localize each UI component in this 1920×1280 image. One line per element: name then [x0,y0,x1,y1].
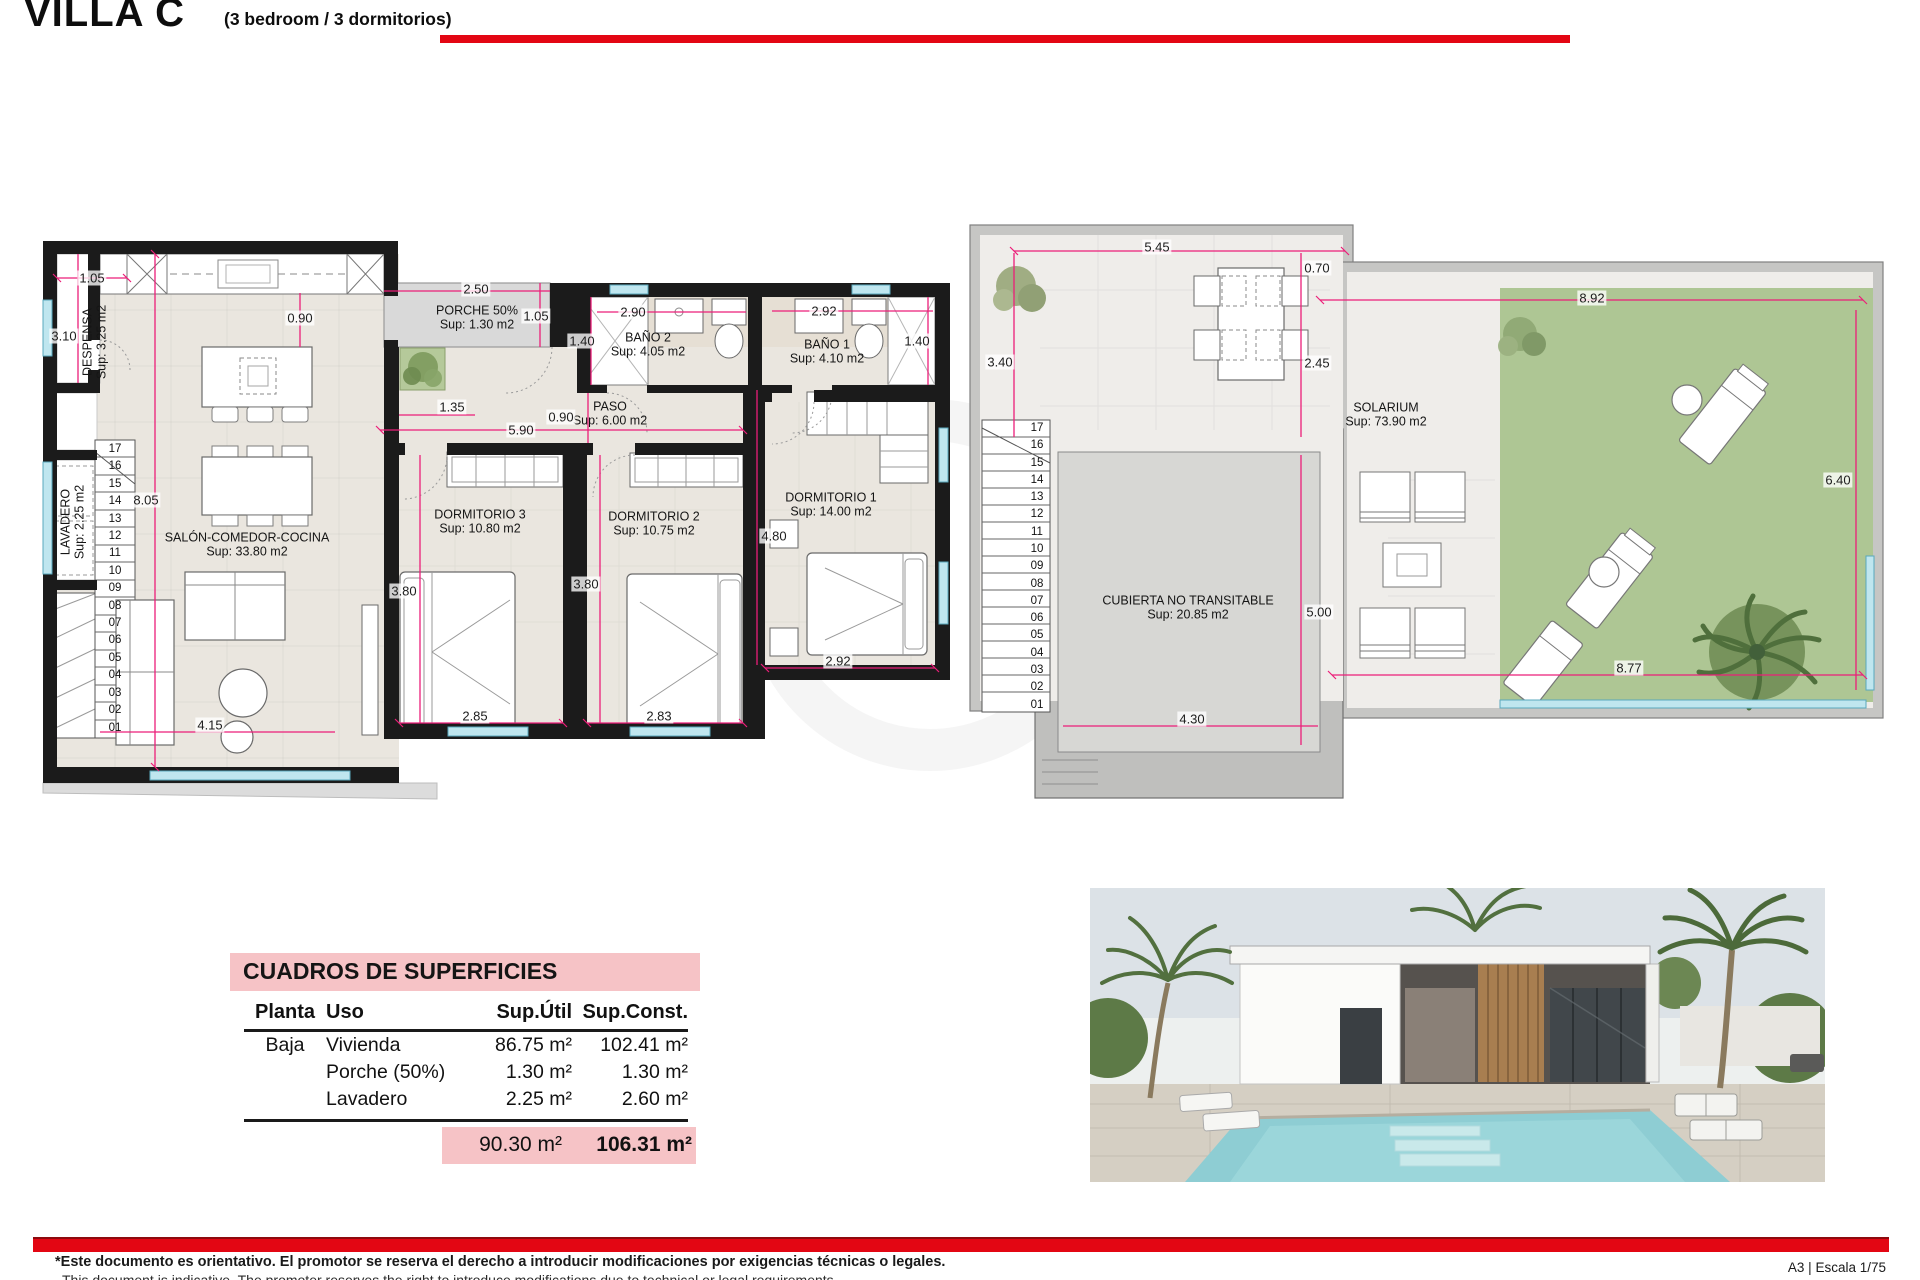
cell-uso: Porche (50%) [326,1059,472,1086]
room-label-cubierta: CUBIERTA NO TRANSITABLESup: 20.85 m2 [1102,594,1273,623]
table-row: Lavadero 2.25 m² 2.60 m² [244,1086,688,1113]
stair-step-number: 07 [1017,596,1057,608]
room-label-dormitorio3: DORMITORIO 3Sup: 10.80 m2 [434,508,525,537]
stair-step-number: 10 [1017,544,1057,556]
page-subtitle: (3 bedroom / 3 dormitorios) [224,9,452,30]
total-sup-const: 106.31 m² [562,1133,692,1157]
surface-table-header: Planta Uso Sup.Útil Sup.Const. [244,991,688,1032]
table-row: Porche (50%) 1.30 m² 1.30 m² [244,1059,688,1086]
dim-label: 3.10 [49,329,78,344]
dim-label: 5.90 [506,423,535,438]
dim-label: 3.80 [389,584,418,599]
room-label-bano2: BAÑO 2Sup: 4.05 m2 [611,331,685,360]
stair-step-number: 06 [1017,613,1057,625]
stair-step-number: 13 [1017,492,1057,504]
surface-table-title: CUADROS DE SUPERFICIES [230,953,700,991]
stair-step-number: 03 [1017,665,1057,677]
dim-label: 8.77 [1614,661,1643,676]
footer-disclaimer-en: This document is indicative. The promote… [62,1272,838,1280]
cell-uso: Vivienda [326,1032,472,1059]
cell-const: 2.60 m² [572,1086,688,1113]
dim-label: 2.85 [460,709,489,724]
dim-label: 8.05 [131,493,160,508]
footer-disclaimer-es: *Este documento es orientativo. El promo… [55,1254,945,1270]
stair-step-number: 03 [95,688,135,700]
cell-const: 1.30 m² [572,1059,688,1086]
stair-step-number: 16 [95,461,135,473]
stair-numbers-ground: 1716151413121110090807060504030201 [95,444,135,734]
stair-step-number: 10 [95,566,135,578]
dim-label: 8.92 [1577,291,1606,306]
total-sup-util: 90.30 m² [450,1133,562,1157]
col-header-planta: Planta [244,1001,326,1024]
dim-label: 2.90 [618,305,647,320]
stair-step-number: 01 [1017,700,1057,712]
stair-step-number: 17 [1017,423,1057,435]
stair-step-number: 09 [1017,561,1057,573]
footer-rule [33,1237,1889,1252]
stair-step-number: 13 [95,514,135,526]
cell-uso: Lavadero [326,1086,472,1113]
cell-planta [244,1059,326,1086]
room-label-lavadero: LAVADEROSup: 2.25 m2 [59,485,88,559]
room-label-porche: PORCHE 50%Sup: 1.30 m2 [436,304,518,333]
stair-step-number: 09 [95,583,135,595]
dim-label: 4.30 [1177,712,1206,727]
stair-step-number: 15 [1017,458,1057,470]
stair-step-number: 04 [95,670,135,682]
dim-label: 0.90 [285,311,314,326]
dim-label: 3.80 [571,577,600,592]
stair-step-number: 04 [1017,648,1057,660]
room-label-salon: SALÓN-COMEDOR-COCINASup: 33.80 m2 [165,531,330,560]
dim-label: 2.92 [823,654,852,669]
cell-const: 102.41 m² [572,1032,688,1059]
stair-step-number: 14 [95,496,135,508]
stair-step-number: 02 [95,705,135,717]
dim-label: 1.40 [902,334,931,349]
cell-util: 1.30 m² [472,1059,572,1086]
stair-step-number: 15 [95,479,135,491]
col-header-sup-const: Sup.Const. [572,1001,688,1024]
stair-step-number: 11 [95,548,135,560]
dim-label: 3.40 [985,355,1014,370]
dim-label: 1.05 [521,309,550,324]
roof-plan-geometry [970,225,1883,798]
stair-step-number: 08 [1017,579,1057,591]
dim-label: 1.40 [567,334,596,349]
stair-step-number: 14 [1017,475,1057,487]
stair-step-number: 12 [95,531,135,543]
footer-sheet-info: A3 | Escala 1/75 [1788,1260,1886,1275]
dim-label: 2.83 [644,709,673,724]
page-title: VILLA C [24,0,185,36]
stair-numbers-roof: 1716151413121110090807060504030201 [1017,423,1057,711]
room-label-paso: PASOSup: 6.00 m2 [573,400,647,429]
room-label-solarium: SOLARIUMSup: 73.90 m2 [1345,401,1426,430]
table-separator [244,1119,688,1122]
col-header-sup-util: Sup.Útil [472,1001,572,1024]
stair-step-number: 02 [1017,682,1057,694]
cell-planta [244,1086,326,1113]
villa-render-image [1068,882,1835,1182]
room-label-despensa: DESPENSASup: 3.25 m2 [81,305,110,379]
table-total-row: 90.30 m² 106.31 m² [244,1127,696,1164]
dim-label: 0.90 [546,410,575,425]
surface-table: CUADROS DE SUPERFICIES Planta Uso Sup.Út… [230,953,700,1164]
dim-label: 1.05 [77,271,106,286]
stair-step-number: 08 [95,601,135,613]
room-label-bano1: BAÑO 1Sup: 4.10 m2 [790,338,864,367]
cell-util: 86.75 m² [472,1032,572,1059]
stair-step-number: 06 [95,635,135,647]
header-rule [440,35,1570,43]
dim-label: 1.35 [437,400,466,415]
dim-label: 5.45 [1142,240,1171,255]
stair-step-number: 05 [1017,630,1057,642]
stair-step-number: 01 [95,723,135,735]
room-label-dormitorio1: DORMITORIO 1Sup: 14.00 m2 [785,491,876,520]
dim-label: 0.70 [1302,261,1331,276]
room-label-dormitorio2: DORMITORIO 2Sup: 10.75 m2 [608,510,699,539]
dim-label: 2.45 [1302,356,1331,371]
stair-step-number: 07 [95,618,135,630]
cell-util: 2.25 m² [472,1086,572,1113]
dim-label: 2.92 [809,304,838,319]
stair-step-number: 12 [1017,509,1057,521]
plan-sheet: VILLA C (3 bedroom / 3 dormitorios) DESP… [0,0,1920,1280]
dim-label: 5.00 [1304,605,1333,620]
cell-planta: Baja [244,1032,326,1059]
dim-label: 6.40 [1823,473,1852,488]
stair-step-number: 16 [1017,440,1057,452]
stair-step-number: 11 [1017,527,1057,539]
dim-label: 2.50 [461,282,490,297]
table-row: Baja Vivienda 86.75 m² 102.41 m² [244,1032,688,1059]
stair-step-number: 05 [95,653,135,665]
col-header-uso: Uso [326,1001,472,1024]
dim-label: 4.15 [195,718,224,733]
dim-label: 4.80 [759,529,788,544]
stair-step-number: 17 [95,444,135,456]
